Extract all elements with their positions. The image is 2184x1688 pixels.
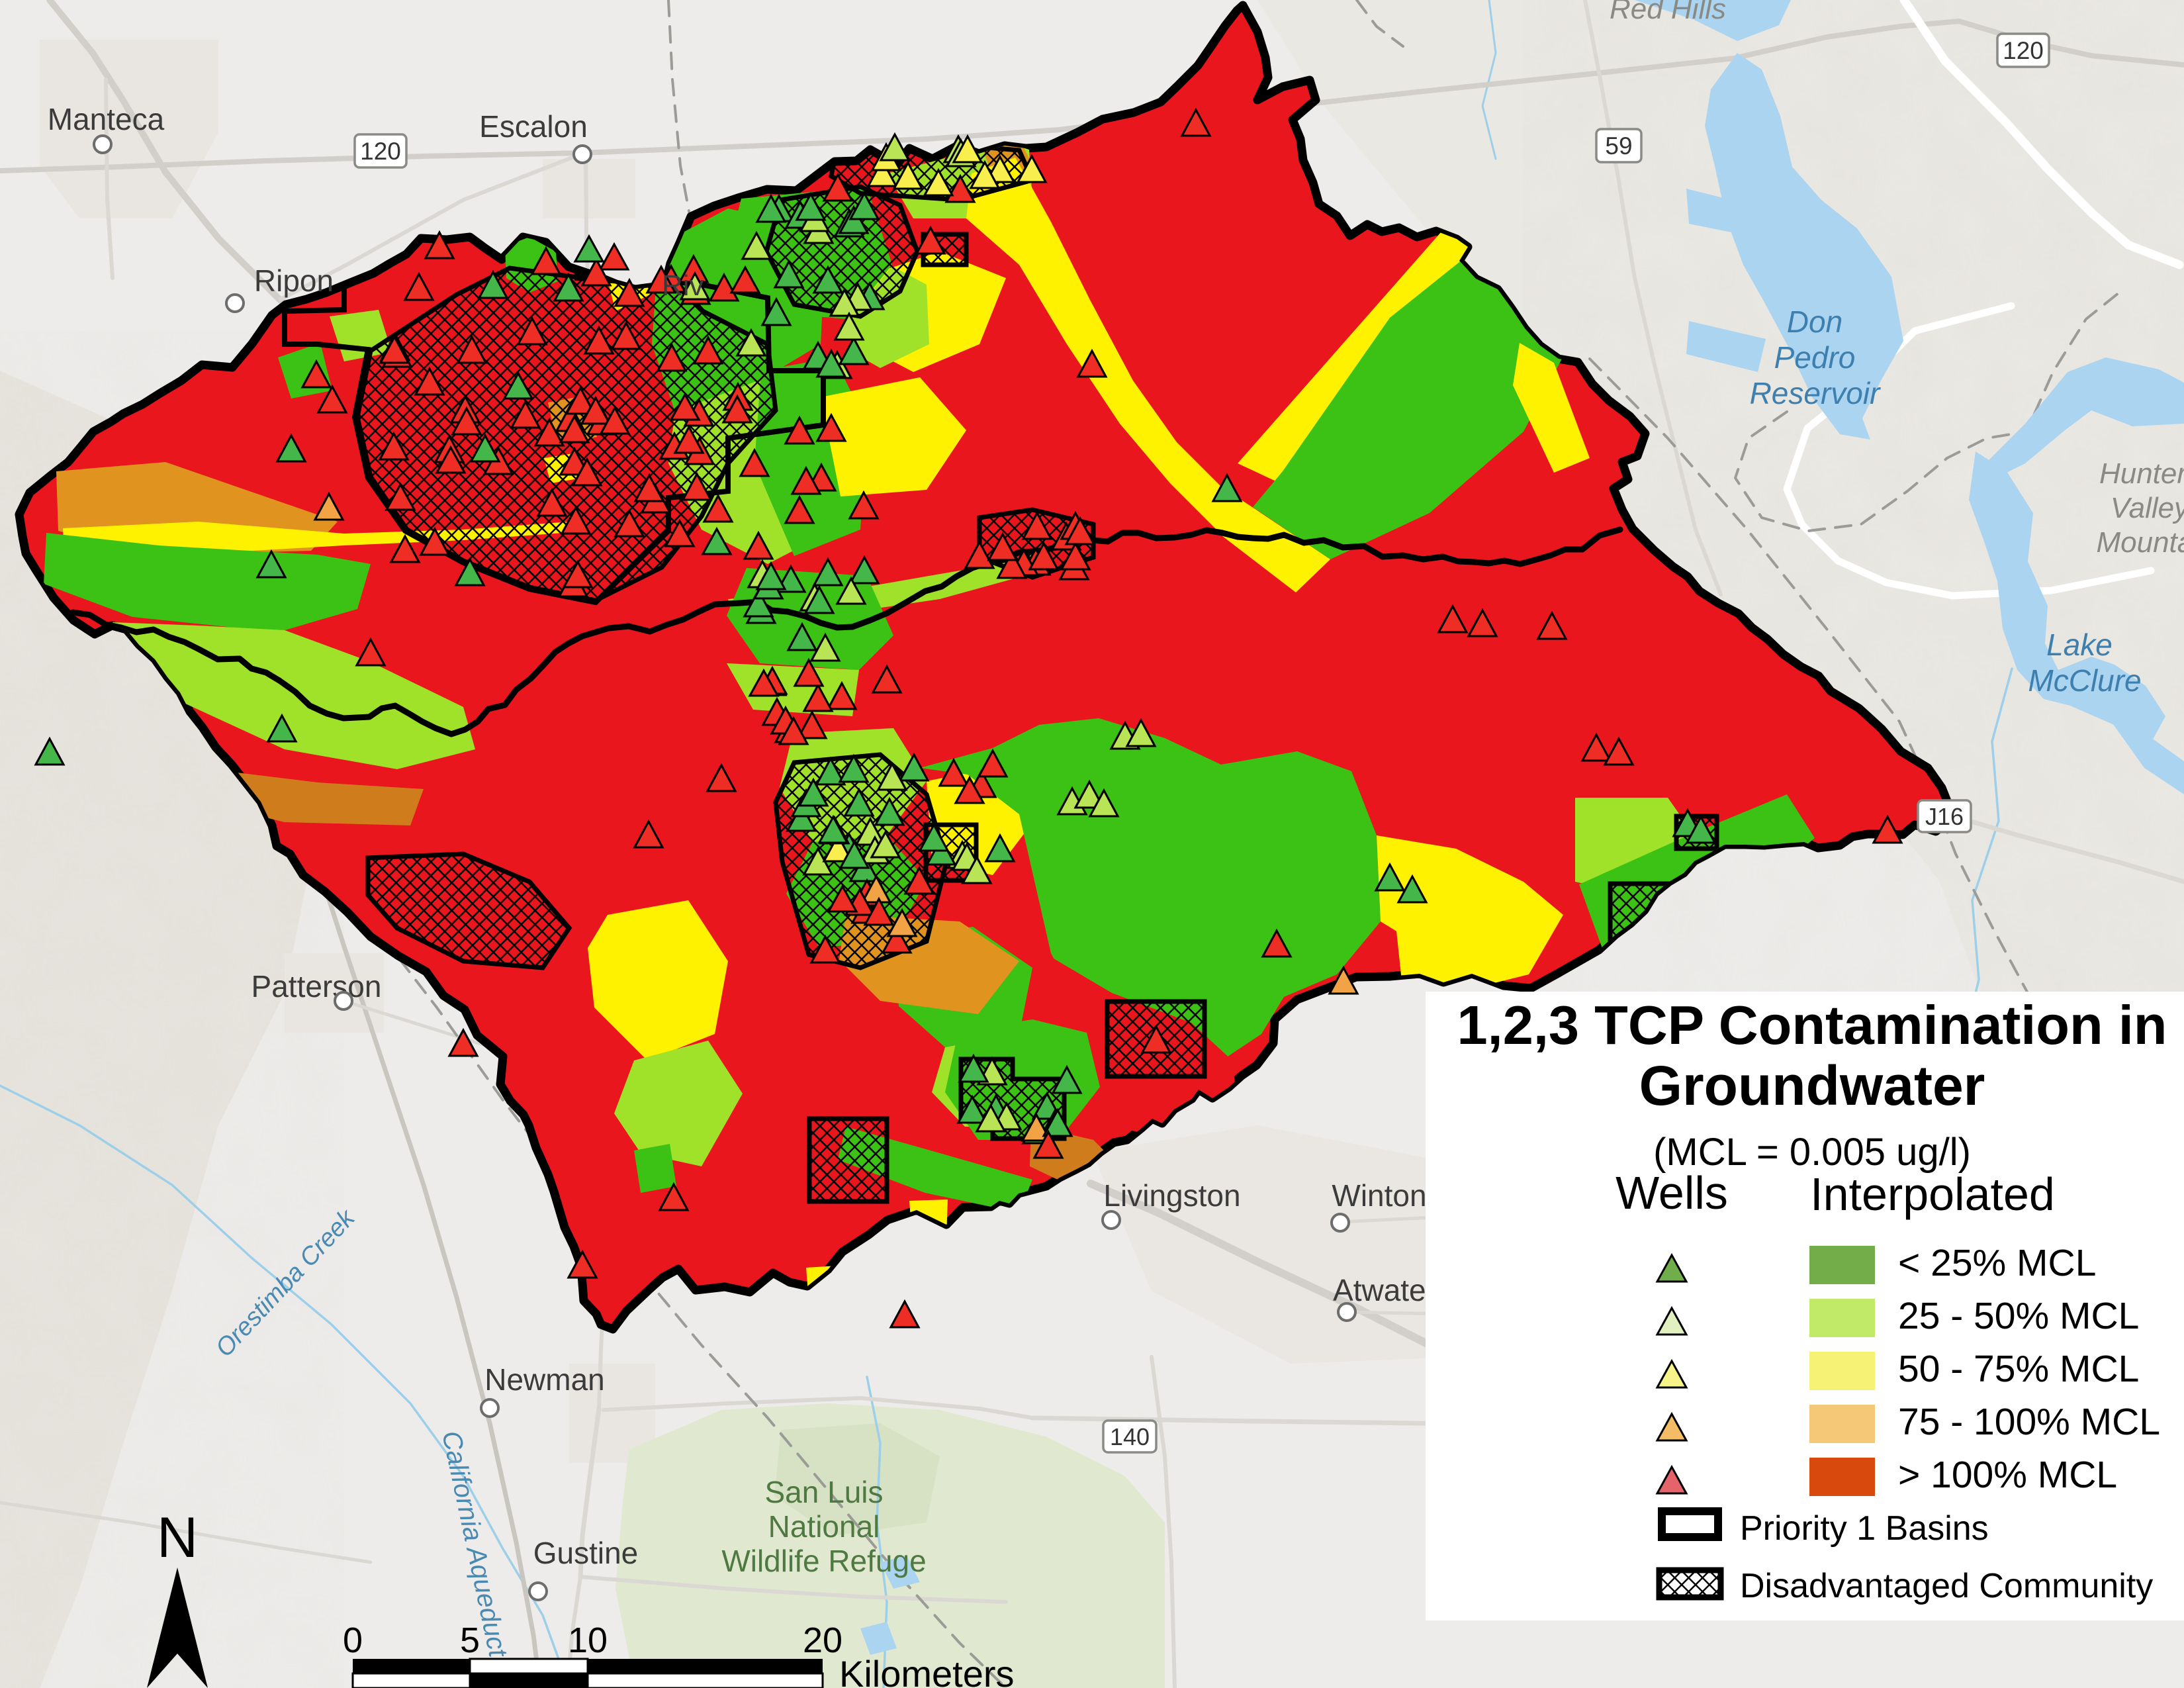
svg-text:Riv: Riv <box>662 269 704 302</box>
svg-text:Disadvantaged Community: Disadvantaged Community <box>1740 1567 2153 1605</box>
svg-text:Winton: Winton <box>1332 1178 1426 1213</box>
svg-text:Escalon: Escalon <box>479 109 588 144</box>
svg-text:Pedro: Pedro <box>1774 340 1856 375</box>
svg-text:Mountain: Mountain <box>2096 526 2184 559</box>
svg-text:140: 140 <box>1110 1423 1150 1450</box>
svg-text:Hunter: Hunter <box>2099 457 2184 490</box>
svg-text:< 25% MCL: < 25% MCL <box>1898 1242 2096 1284</box>
svg-text:Manteca: Manteca <box>48 102 165 136</box>
svg-text:20: 20 <box>803 1620 842 1660</box>
svg-text:5: 5 <box>460 1620 480 1660</box>
svg-text:Reservoir: Reservoir <box>1750 376 1882 410</box>
svg-text:59: 59 <box>1605 132 1632 160</box>
svg-text:Newman: Newman <box>484 1362 605 1397</box>
svg-text:J16: J16 <box>1925 803 1964 830</box>
svg-text:Wells: Wells <box>1615 1167 1728 1219</box>
svg-text:Kilometers: Kilometers <box>839 1653 1015 1688</box>
svg-text:120: 120 <box>2003 37 2044 64</box>
svg-text:Wildlife Refuge: Wildlife Refuge <box>721 1544 926 1578</box>
svg-text:Lake: Lake <box>2046 628 2113 662</box>
svg-text:National: National <box>768 1509 880 1544</box>
svg-text:Valley: Valley <box>2111 492 2184 524</box>
svg-text:10: 10 <box>568 1620 608 1660</box>
svg-text:120: 120 <box>360 138 401 165</box>
svg-text:N: N <box>157 1506 198 1570</box>
svg-text:75 - 100% MCL: 75 - 100% MCL <box>1898 1401 2160 1443</box>
svg-text:0: 0 <box>343 1620 363 1660</box>
svg-text:Groundwater: Groundwater <box>1639 1055 1985 1117</box>
svg-text:50 - 75% MCL: 50 - 75% MCL <box>1898 1348 2139 1390</box>
svg-text:Livingston: Livingston <box>1103 1178 1240 1213</box>
svg-text:Ripon: Ripon <box>254 263 334 298</box>
svg-text:McClure: McClure <box>2028 663 2141 698</box>
svg-text:Gustine: Gustine <box>533 1536 639 1570</box>
svg-text:25 - 50% MCL: 25 - 50% MCL <box>1898 1295 2139 1337</box>
svg-text:Priority 1 Basins: Priority 1 Basins <box>1740 1509 1989 1548</box>
svg-text:Patterson: Patterson <box>251 969 382 1004</box>
svg-text:> 100% MCL: > 100% MCL <box>1898 1454 2117 1496</box>
svg-text:Red Hills: Red Hills <box>1610 0 1726 25</box>
svg-text:1,2,3 TCP Contamination in: 1,2,3 TCP Contamination in <box>1457 994 2167 1056</box>
svg-text:Interpolated: Interpolated <box>1810 1168 2055 1220</box>
svg-text:Don: Don <box>1787 305 1843 339</box>
svg-text:San Luis: San Luis <box>764 1475 883 1509</box>
